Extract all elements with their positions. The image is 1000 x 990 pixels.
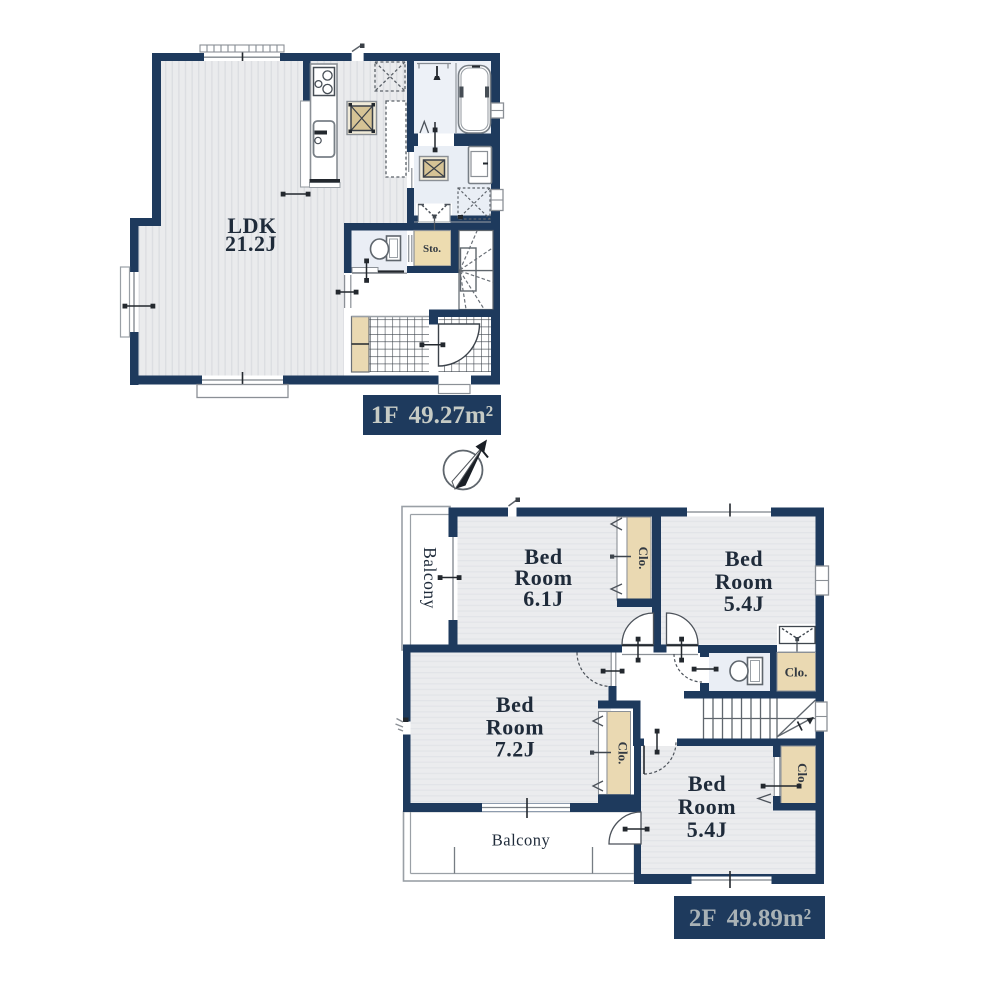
- svg-text:Balcony: Balcony: [492, 831, 551, 850]
- svg-text:5.4J: 5.4J: [687, 817, 728, 842]
- svg-text:Clo.: Clo.: [636, 547, 651, 570]
- svg-text:1F 49.27m²: 1F 49.27m²: [371, 402, 493, 429]
- svg-text:Bed: Bed: [688, 771, 726, 796]
- svg-text:5.4J: 5.4J: [724, 591, 765, 616]
- svg-text:Clo.: Clo.: [785, 665, 808, 680]
- svg-text:Balcony: Balcony: [420, 547, 440, 609]
- svg-text:21.2J: 21.2J: [225, 231, 277, 256]
- svg-text:2F 49.89m²: 2F 49.89m²: [689, 905, 811, 932]
- svg-text:6.1J: 6.1J: [523, 586, 564, 611]
- svg-text:Clo.: Clo.: [795, 763, 810, 786]
- svg-text:Bed: Bed: [725, 546, 763, 571]
- svg-text:Room: Room: [678, 794, 736, 819]
- svg-text:7.2J: 7.2J: [495, 737, 536, 762]
- svg-text:Sto.: Sto.: [423, 243, 441, 255]
- svg-text:Bed: Bed: [496, 692, 534, 717]
- svg-text:Clo.: Clo.: [616, 742, 631, 765]
